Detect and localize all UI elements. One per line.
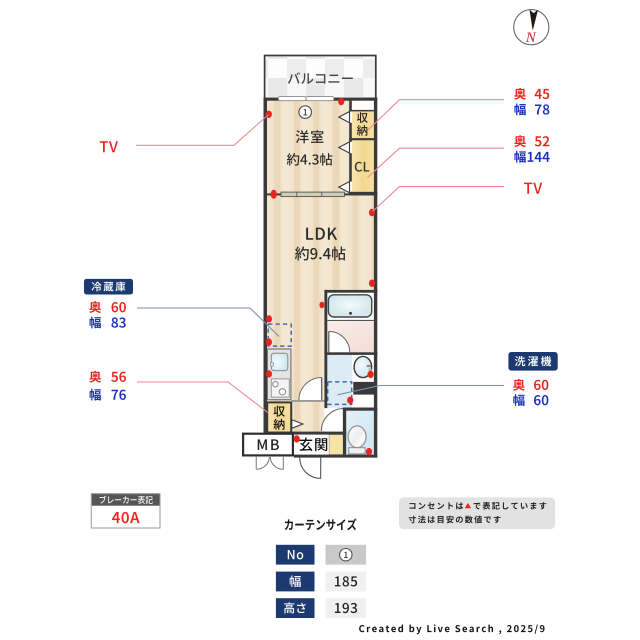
svg-text:N: N	[525, 30, 537, 46]
